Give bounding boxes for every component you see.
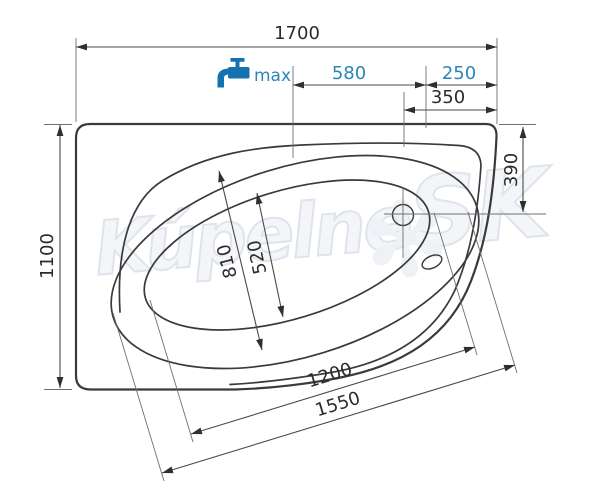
arrow-1700-right — [486, 44, 497, 51]
dim-tap-zone-edge-offset: 250 — [442, 65, 476, 83]
dim-overall-width: 1100 — [39, 233, 57, 279]
faucet-spout — [218, 69, 230, 88]
arrow-390-top — [520, 127, 527, 138]
ext-basin-left — [150, 300, 193, 442]
dim-tap-zone-length: 580 — [332, 65, 366, 83]
arrow-520-top — [256, 193, 263, 205]
tap-max-label: max — [254, 68, 291, 85]
arrow-250-right — [486, 82, 497, 89]
basin-oval — [127, 151, 447, 360]
dim-drain-offset-from-edge: 350 — [431, 89, 465, 107]
arrow-810-top — [218, 171, 225, 183]
ext-rim-left — [113, 313, 164, 481]
arrow-1550-left — [162, 467, 174, 474]
tub-contours — [76, 116, 504, 409]
arrow-580-left — [293, 82, 304, 89]
arrow-520-bottom — [277, 306, 284, 318]
arrow-580-right — [415, 82, 426, 89]
faucet-handle — [231, 58, 245, 67]
faucet-body — [228, 67, 250, 79]
extension-lines — [44, 38, 546, 481]
arrow-1200-right — [464, 347, 476, 354]
arrow-1700-left — [76, 44, 87, 51]
dim-overall-length: 1700 — [274, 25, 320, 43]
arrow-1550-right — [504, 365, 516, 372]
tub-rim-inner-contour — [119, 143, 481, 384]
arrow-390-bottom — [520, 201, 527, 212]
technical-drawing-canvas: KúpelneSK ✻ — [0, 0, 600, 498]
overflow-hole-oval — [420, 252, 444, 272]
arrow-350-right — [486, 107, 497, 114]
faucet-icon — [218, 58, 250, 88]
arrow-350-left — [404, 107, 415, 114]
arrow-810-bottom — [256, 339, 263, 351]
arrow-1200-left — [191, 428, 203, 435]
arrow-1100-bottom — [57, 377, 64, 388]
dimension-lines — [60, 47, 523, 473]
dim-drain-offset-from-top: 390 — [503, 153, 521, 187]
arrow-1100-top — [57, 125, 64, 136]
bathtub-drawing — [0, 0, 600, 498]
